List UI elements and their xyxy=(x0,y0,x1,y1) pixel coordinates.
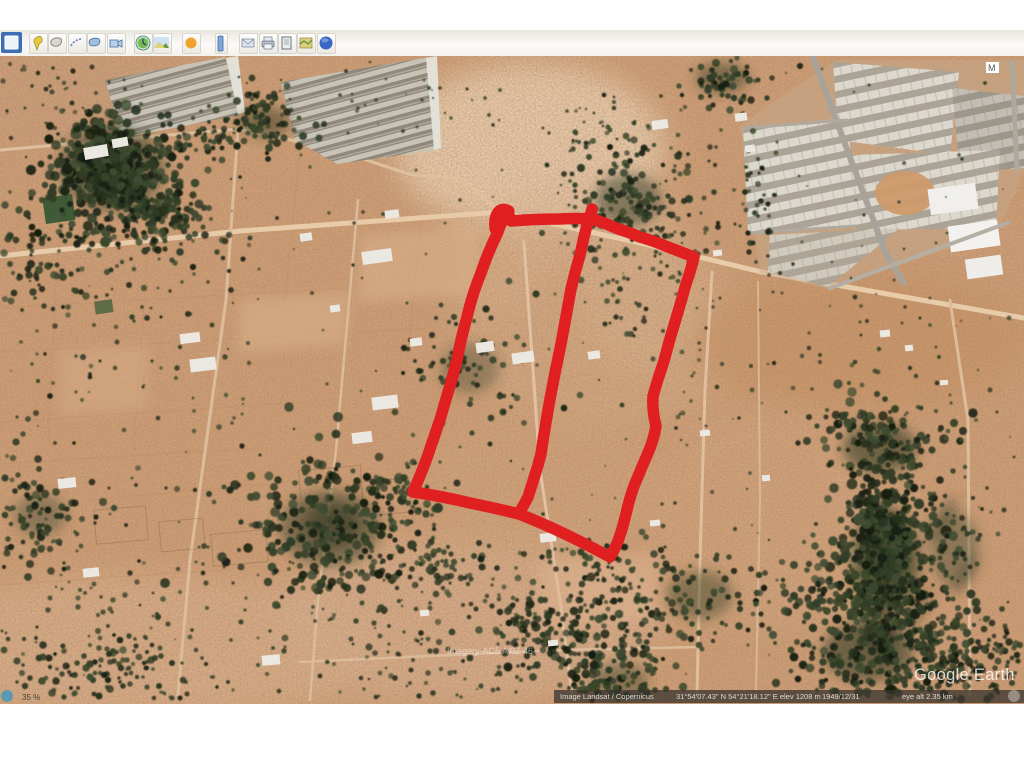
svg-text:35 %: 35 % xyxy=(22,693,40,702)
svg-text:eye alt 2.35 km: eye alt 2.35 km xyxy=(902,692,953,701)
svg-text:Google Earth: Google Earth xyxy=(914,666,1015,684)
svg-text:31°54'07.43" N 54°21'18.12" E: 31°54'07.43" N 54°21'18.12" E elev 1208 … xyxy=(676,692,821,701)
svg-text:Image Landsat / Copernicus: Image Landsat / Copernicus xyxy=(560,692,654,701)
svg-text:M: M xyxy=(988,63,996,73)
svg-text:Imagery-AC5 Al0Z 46: Imagery-AC5 Al0Z 46 xyxy=(447,646,533,656)
svg-text:1949/12/31: 1949/12/31 xyxy=(822,692,860,701)
